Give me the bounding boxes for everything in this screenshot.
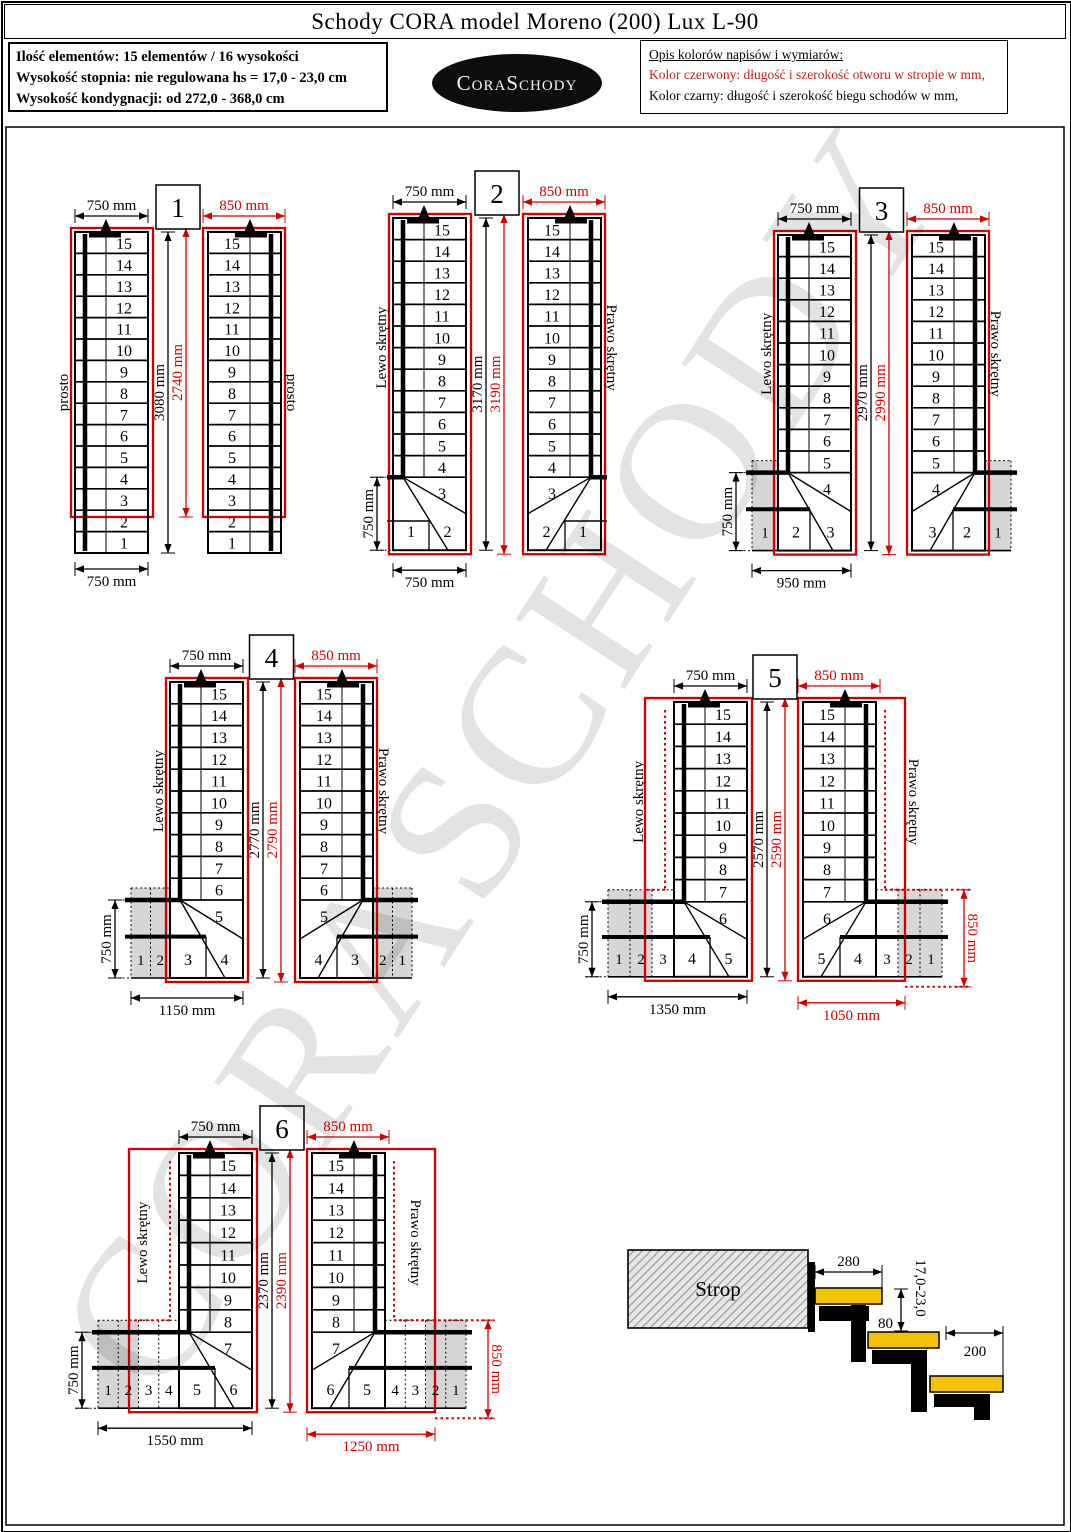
- turn-label: Lewo skrętny: [374, 306, 390, 389]
- step-number: 9: [823, 840, 831, 857]
- step-number: 4: [120, 472, 128, 489]
- step-number: 2: [432, 1383, 440, 1399]
- step-number: 11: [211, 774, 226, 791]
- step-number: 13: [116, 279, 132, 296]
- step-number: 12: [328, 1225, 344, 1242]
- dim-label: 280: [837, 1254, 860, 1270]
- step-number: 3: [883, 952, 891, 968]
- step-number: 10: [715, 818, 731, 835]
- step-number: 9: [320, 817, 328, 834]
- step-number: 11: [116, 322, 131, 339]
- turn-label: Prawo skrętny: [987, 311, 1003, 398]
- step-number: 3: [659, 952, 667, 968]
- step-number: 7: [228, 407, 236, 424]
- step-number: 14: [715, 729, 731, 746]
- diagram-number: 6: [275, 1114, 289, 1144]
- step-number: 10: [316, 795, 332, 812]
- step-number: 7: [320, 861, 328, 878]
- step-number: 1: [761, 526, 769, 542]
- dim-label: 750 mm: [686, 668, 736, 684]
- step-number: 15: [220, 1158, 236, 1175]
- step-number: 2: [228, 514, 236, 531]
- diagram-number: 2: [490, 179, 504, 209]
- dim-label: 750 mm: [99, 914, 115, 964]
- step-number: 4: [854, 951, 862, 968]
- step-number: 5: [932, 455, 940, 472]
- step-number: 15: [434, 222, 450, 239]
- step-number: 6: [823, 434, 831, 451]
- step-number: 3: [827, 525, 835, 542]
- step-number: 5: [823, 455, 831, 472]
- dim-label: 2970 mm: [855, 364, 871, 421]
- step-number: 12: [544, 287, 560, 304]
- step-number: 3: [145, 1383, 153, 1399]
- dim-label: 2570 mm: [751, 811, 767, 868]
- step-number: 1: [994, 526, 1002, 542]
- step-number: 14: [116, 258, 132, 275]
- step-number: 11: [819, 326, 834, 343]
- step-number: 15: [211, 686, 227, 703]
- step-number: 11: [928, 326, 943, 343]
- dim-label: 850 mm: [311, 648, 361, 664]
- step-number: 11: [316, 774, 331, 791]
- step-number: 4: [823, 482, 831, 499]
- step-number: 3: [120, 493, 128, 510]
- step-number: 4: [688, 951, 696, 968]
- stair-diagram-4: 151413121110987634512750 mm1150 mm750 mm…: [99, 635, 418, 1019]
- step-number: 9: [224, 1292, 232, 1309]
- step-number: 1: [104, 1383, 112, 1399]
- step-number: 11: [544, 309, 559, 326]
- step-number: 10: [434, 330, 450, 347]
- step-number: 6: [548, 417, 556, 434]
- strop-label: Strop: [695, 1277, 741, 1301]
- step-number: 14: [224, 258, 240, 275]
- dim-label: 2370 mm: [256, 1252, 272, 1309]
- dim-label: 2990 mm: [873, 364, 889, 421]
- dim-label: 850 mm: [814, 668, 864, 684]
- step-number: 5: [438, 438, 446, 455]
- step-number: 12: [434, 287, 450, 304]
- step-number: 2: [444, 524, 452, 541]
- step-number: 1: [228, 536, 236, 553]
- step-number: 7: [332, 1341, 340, 1358]
- step-number: 5: [548, 438, 556, 455]
- step-number: 6: [228, 429, 236, 446]
- step-number: 5: [363, 1382, 371, 1399]
- step-number: 6: [120, 429, 128, 446]
- dim-label: 950 mm: [777, 576, 827, 592]
- step-number: 1: [120, 536, 128, 553]
- step-number: 5: [193, 1382, 201, 1399]
- step-number: 9: [719, 840, 727, 857]
- step-number: 6: [438, 417, 446, 434]
- dim-label: 850 mm: [219, 198, 269, 214]
- step-number: 14: [434, 244, 450, 261]
- step-number: 7: [823, 884, 831, 901]
- dim-label: 850 mm: [539, 184, 589, 200]
- step-number: 5: [120, 450, 128, 467]
- step-number: 6: [719, 911, 727, 928]
- step-number: 6: [823, 911, 831, 928]
- dim-label: 1050 mm: [823, 1008, 880, 1024]
- step-number: 13: [220, 1203, 236, 1220]
- step-number: 12: [116, 300, 132, 317]
- step-number: 3: [228, 493, 236, 510]
- dim-label: 850 mm: [488, 1344, 504, 1394]
- step-number: 2: [543, 524, 551, 541]
- step-number: 2: [157, 953, 165, 969]
- step-number: 4: [548, 460, 556, 477]
- step-number: 15: [544, 222, 560, 239]
- dim-label: 3170 mm: [470, 355, 486, 412]
- step-number: 1: [579, 524, 587, 541]
- dim-label: 2590 mm: [769, 811, 785, 868]
- step-number: 10: [819, 347, 835, 364]
- step-number: 12: [220, 1225, 236, 1242]
- step-number: 10: [224, 343, 240, 360]
- step-number: 8: [332, 1315, 340, 1332]
- dim-label: 750 mm: [720, 486, 736, 536]
- diagram-number: 4: [265, 643, 279, 673]
- step-number: 9: [438, 352, 446, 369]
- dim-label: 850 mm: [964, 914, 980, 964]
- step-number: 8: [823, 862, 831, 879]
- step-number: 11: [434, 309, 449, 326]
- stair-plans-canvas: 151413121110987654321750 mm750 mmprosto1…: [0, 0, 1071, 1532]
- step-number: 5: [725, 951, 733, 968]
- step-number: 9: [548, 352, 556, 369]
- step-number: 7: [215, 861, 223, 878]
- step-number: 13: [224, 279, 240, 296]
- dim-label: 1350 mm: [649, 1002, 706, 1018]
- dim-label: 750 mm: [790, 201, 840, 217]
- step-number: 8: [320, 839, 328, 856]
- step-number: 7: [224, 1341, 232, 1358]
- dim-label: 750 mm: [361, 489, 377, 539]
- dim-label: 750 mm: [87, 574, 137, 590]
- step-number: 10: [211, 795, 227, 812]
- step-number: 1: [452, 1383, 460, 1399]
- dim-label: 2390 mm: [274, 1252, 290, 1309]
- dim-label: 17,0-23,0: [912, 1259, 928, 1317]
- step-number: 2: [792, 525, 800, 542]
- step-number: 4: [438, 460, 446, 477]
- dim-label: 1150 mm: [159, 1003, 216, 1019]
- step-number: 9: [228, 365, 236, 382]
- turn-label: Lewo skrętny: [759, 312, 775, 395]
- step-number: 12: [819, 304, 835, 321]
- step-number: 6: [215, 883, 223, 900]
- step-number: 4: [932, 482, 940, 499]
- turn-label: prosto: [56, 374, 72, 412]
- step-number: 10: [220, 1270, 236, 1287]
- step-number: 11: [715, 796, 730, 813]
- step-number: 13: [211, 730, 227, 747]
- stair-diagram-2: 151413121110987654123750 mm750 mm750 mmL…: [361, 171, 619, 591]
- step-number: 15: [819, 239, 835, 256]
- step-number: 5: [320, 909, 328, 926]
- step-number: 1: [927, 952, 935, 968]
- dim-label: 3080 mm: [152, 364, 168, 421]
- step-number: 5: [228, 450, 236, 467]
- step-number: 11: [224, 322, 239, 339]
- step-number: 12: [928, 304, 944, 321]
- stair-diagram-1: 151413121110987654321750 mm750 mmprosto1…: [56, 185, 299, 590]
- step-number: 9: [332, 1292, 340, 1309]
- step-number: 11: [220, 1248, 235, 1265]
- step-number: 13: [544, 265, 560, 282]
- step-number: 13: [434, 265, 450, 282]
- step-number: 6: [327, 1382, 335, 1399]
- dim-label: 2790 mm: [265, 801, 281, 858]
- dim-label: 3190 mm: [488, 355, 504, 412]
- step-number: 2: [120, 514, 128, 531]
- step-number: 13: [316, 730, 332, 747]
- step-number: 4: [165, 1383, 173, 1399]
- dim-label: 1550 mm: [146, 1433, 203, 1449]
- step-number: 7: [120, 407, 128, 424]
- turn-label: Lewo skrętny: [151, 749, 167, 832]
- step-number: 15: [224, 236, 240, 253]
- step-number: 2: [125, 1383, 133, 1399]
- dim-label: 200: [964, 1344, 987, 1360]
- step-number: 13: [928, 282, 944, 299]
- step-number: 4: [221, 952, 229, 969]
- step-number: 14: [819, 729, 835, 746]
- turn-label: Prawo skrętny: [603, 304, 619, 391]
- dim-label: 1250 mm: [342, 1439, 399, 1455]
- step-number: 15: [116, 236, 132, 253]
- strop-section-detail: Strop2808017,0-23,0200: [628, 1250, 1003, 1420]
- dim-label: 80: [878, 1316, 893, 1332]
- step-number: 3: [184, 952, 192, 969]
- turn-label: Lewo skrętny: [135, 1201, 151, 1284]
- step-number: 1: [615, 952, 623, 968]
- step-number: 11: [328, 1248, 343, 1265]
- step-number: 8: [548, 373, 556, 390]
- step-number: 3: [929, 525, 937, 542]
- stair-diagram-3: 151413121110987652341750 mm950 mm750 mmL…: [720, 188, 1017, 592]
- dim-label: 750 mm: [66, 1345, 82, 1395]
- step-number: 10: [544, 330, 560, 347]
- dim-label: 750 mm: [405, 184, 455, 200]
- step-number: 10: [116, 343, 132, 360]
- step-number: 14: [819, 261, 835, 278]
- step-number: 8: [215, 839, 223, 856]
- dim-label: 850 mm: [323, 1119, 373, 1135]
- step-number: 15: [715, 707, 731, 724]
- step-number: 12: [211, 752, 227, 769]
- step-number: 7: [719, 884, 727, 901]
- step-number: 15: [316, 686, 332, 703]
- step-number: 2: [637, 952, 645, 968]
- step-number: 12: [819, 773, 835, 790]
- step-number: 15: [328, 1158, 344, 1175]
- stair-diagram-6: 151413121110985671234750 mm1550 mm750 mm…: [66, 1106, 504, 1455]
- turn-label: Prawo skrętny: [905, 759, 921, 846]
- dim-label: 2740 mm: [170, 344, 186, 401]
- step-number: 9: [215, 817, 223, 834]
- step-number: 1: [407, 524, 415, 541]
- step-number: 5: [818, 951, 826, 968]
- step-number: 2: [379, 953, 387, 969]
- stair-diagram-5: 151413121110987456123750 mm1350 mm750 mm…: [576, 655, 980, 1024]
- turn-label: Prawo skrętny: [375, 748, 391, 835]
- step-number: 6: [230, 1382, 238, 1399]
- dim-label: 2770 mm: [247, 801, 263, 858]
- dim-label: 750 mm: [191, 1119, 241, 1135]
- step-number: 9: [120, 365, 128, 382]
- dim-label: 750 mm: [405, 575, 455, 591]
- diagram-number: 3: [875, 196, 889, 226]
- step-number: 12: [715, 773, 731, 790]
- step-number: 14: [316, 708, 332, 725]
- step-number: 8: [932, 390, 940, 407]
- step-number: 9: [932, 369, 940, 386]
- step-number: 8: [438, 373, 446, 390]
- step-number: 12: [224, 300, 240, 317]
- step-number: 7: [438, 395, 446, 412]
- step-number: 1: [137, 953, 145, 969]
- step-number: 5: [215, 909, 223, 926]
- step-number: 14: [220, 1180, 236, 1197]
- dim-label: 750 mm: [87, 198, 137, 214]
- step-number: 4: [228, 472, 236, 489]
- step-number: 8: [228, 386, 236, 403]
- step-number: 15: [928, 239, 944, 256]
- step-number: 15: [819, 707, 835, 724]
- step-number: 6: [320, 883, 328, 900]
- step-number: 8: [224, 1315, 232, 1332]
- step-number: 9: [823, 369, 831, 386]
- step-number: 8: [823, 390, 831, 407]
- turn-label: Prawo skrętny: [407, 1199, 423, 1286]
- step-number: 12: [316, 752, 332, 769]
- step-number: 7: [932, 412, 940, 429]
- step-number: 13: [328, 1203, 344, 1220]
- step-number: 10: [928, 347, 944, 364]
- step-number: 2: [963, 525, 971, 542]
- step-number: 2: [905, 952, 913, 968]
- step-number: 13: [819, 751, 835, 768]
- step-number: 14: [928, 261, 944, 278]
- step-number: 13: [819, 282, 835, 299]
- step-number: 11: [819, 796, 834, 813]
- step-number: 4: [315, 952, 323, 969]
- step-number: 6: [932, 434, 940, 451]
- diagram-number: 1: [171, 193, 185, 223]
- turn-label: Lewo skrętny: [631, 760, 647, 843]
- step-number: 1: [399, 953, 407, 969]
- step-number: 3: [548, 486, 556, 503]
- step-number: 3: [351, 952, 359, 969]
- step-number: 13: [715, 751, 731, 768]
- stair-spec-sheet: Schody CORA model Moreno (200) Lux L-90 …: [0, 0, 1071, 1532]
- dim-label: 750 mm: [576, 914, 592, 964]
- turn-label: prosto: [283, 374, 299, 412]
- step-number: 8: [719, 862, 727, 879]
- dim-label: 750 mm: [182, 648, 232, 664]
- step-number: 8: [120, 386, 128, 403]
- step-number: 7: [823, 412, 831, 429]
- step-number: 10: [328, 1270, 344, 1287]
- step-number: 3: [412, 1383, 420, 1399]
- step-number: 14: [544, 244, 560, 261]
- step-number: 7: [548, 395, 556, 412]
- step-number: 3: [438, 486, 446, 503]
- step-number: 14: [211, 708, 227, 725]
- step-number: 4: [391, 1383, 399, 1399]
- step-number: 14: [328, 1180, 344, 1197]
- step-number: 10: [819, 818, 835, 835]
- diagram-number: 5: [768, 663, 782, 693]
- dim-label: 850 mm: [923, 201, 973, 217]
